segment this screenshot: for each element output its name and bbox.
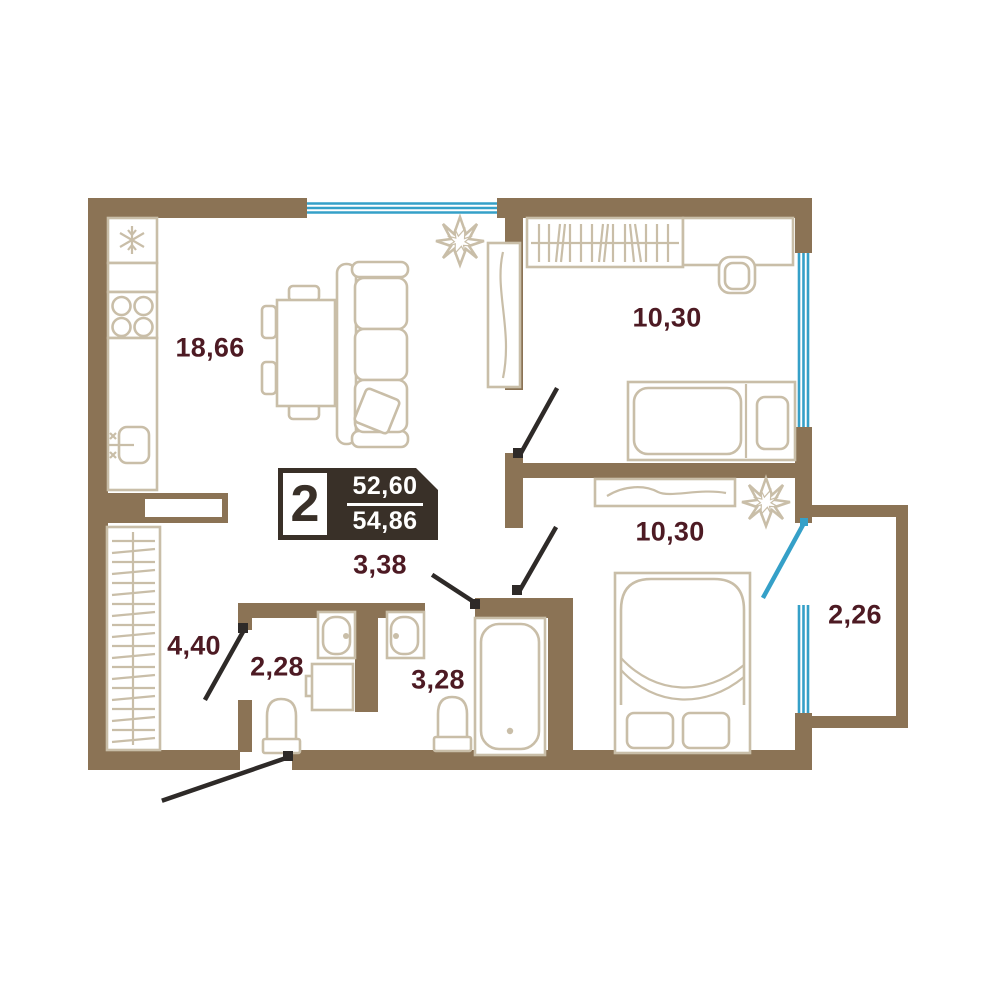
plant-icon — [742, 478, 790, 526]
badge-area-living: 54,86 — [352, 508, 417, 536]
bathroom-sink — [387, 612, 424, 658]
bathroom-sink — [318, 612, 355, 658]
room-label-wc: 2,28 — [250, 652, 304, 683]
room-label-corridor: 4,40 — [167, 631, 221, 662]
window-bedroom-bottom — [795, 605, 812, 713]
apartment-badge: 2 52,60 54,86 — [278, 468, 438, 540]
door-balcony — [764, 518, 808, 596]
window-bedroom-top — [795, 253, 812, 427]
door-bedroom-bottom — [512, 529, 555, 595]
sofa — [337, 262, 408, 447]
toilet — [434, 697, 471, 751]
desk-chair — [719, 257, 755, 293]
corridor-wardrobe — [107, 527, 160, 750]
room-label-balcony: 2,26 — [828, 600, 882, 631]
room-label-bathroom: 3,28 — [411, 665, 465, 696]
room-label-bedroom-bottom: 10,30 — [635, 517, 704, 548]
badge-rooms-count: 2 — [278, 468, 332, 540]
bed-double — [615, 573, 750, 753]
room-label-kitchen-living: 18,66 — [175, 333, 244, 364]
door-bedroom-top — [513, 390, 556, 458]
wardrobe-living — [488, 243, 520, 387]
window-living — [307, 198, 497, 218]
badge-area-total: 52,60 — [352, 473, 417, 501]
door-bathroom — [434, 576, 480, 609]
badge-areas: 52,60 54,86 — [332, 468, 438, 540]
plant-icon — [436, 217, 484, 265]
floor-plan: 18,66 10,30 10,30 3,38 4,40 2,28 3,28 2,… — [0, 0, 1000, 1000]
dining-table — [262, 286, 335, 419]
toilet — [263, 699, 300, 753]
wardrobe-bedroom-top — [527, 218, 683, 267]
room-label-bedroom-top: 10,30 — [632, 303, 701, 334]
bed-single — [628, 382, 795, 460]
badge-divider — [347, 503, 423, 506]
dresser — [595, 479, 735, 506]
bathtub — [475, 618, 545, 755]
floor-plan-drawing — [0, 0, 1000, 1000]
room-label-hallway: 3,38 — [353, 550, 407, 581]
washing-machine — [306, 664, 353, 710]
